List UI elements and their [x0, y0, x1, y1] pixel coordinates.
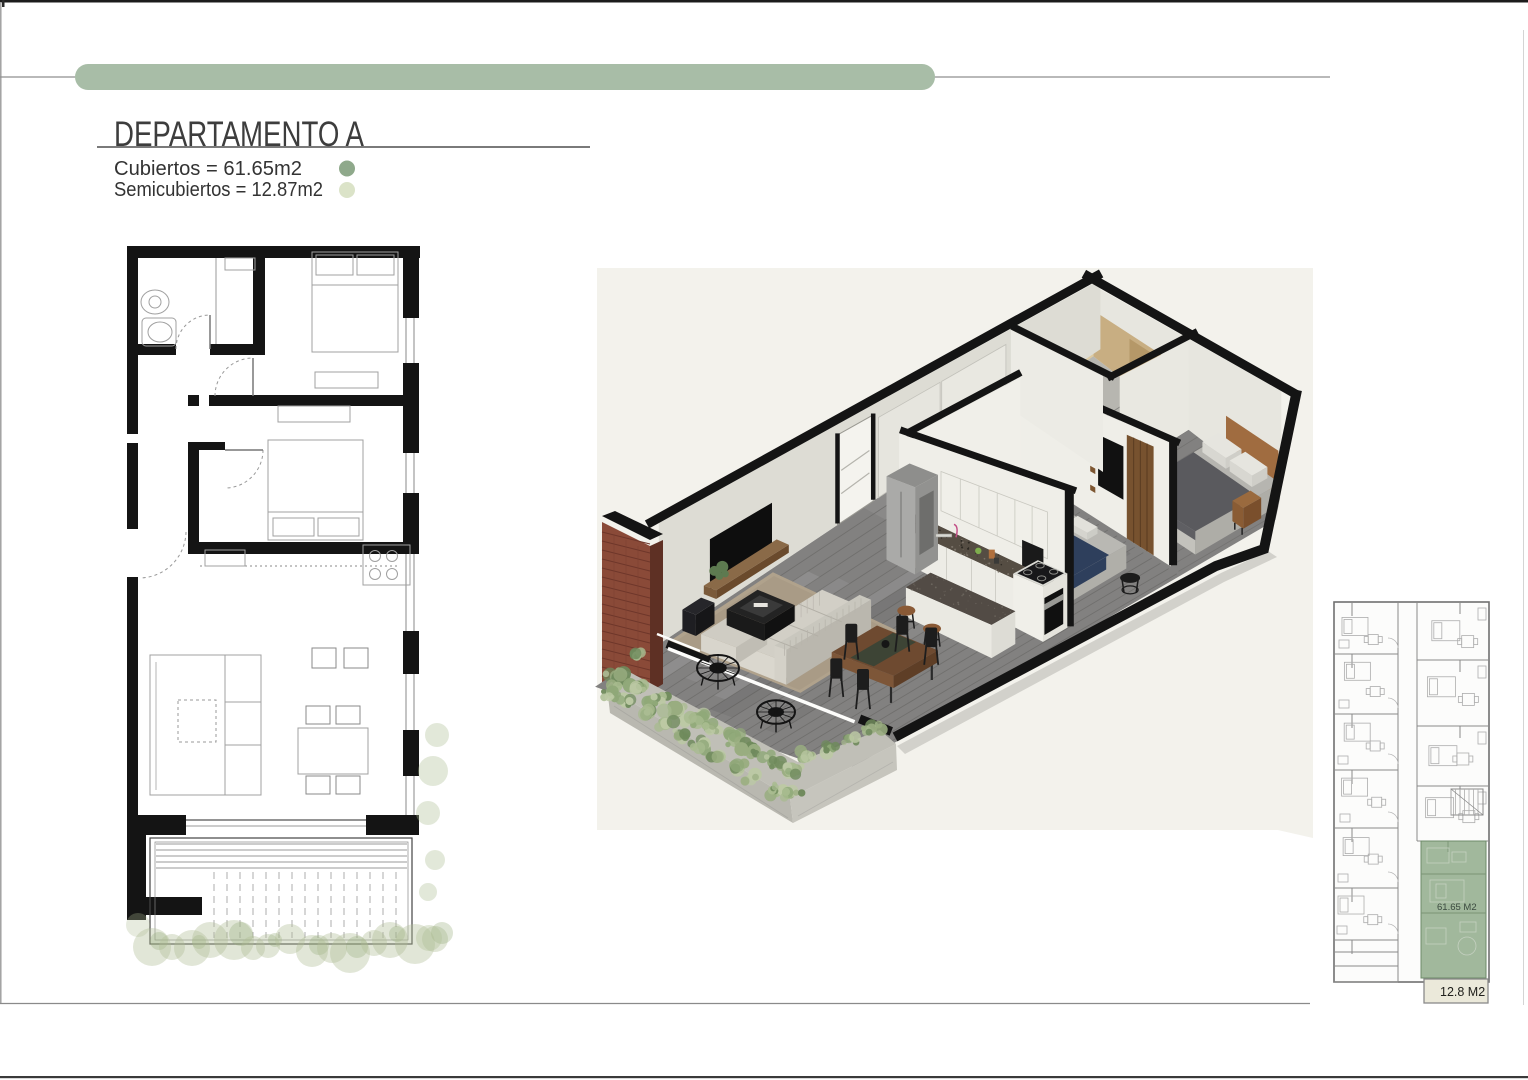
svg-text:DEPARTAMENTO A: DEPARTAMENTO A	[114, 115, 365, 154]
svg-text:61.65 M2: 61.65 M2	[1437, 902, 1477, 913]
svg-text:12.8 M2: 12.8 M2	[1440, 985, 1485, 999]
svg-text:Semicubiertos = 12.87m2: Semicubiertos = 12.87m2	[114, 179, 323, 201]
svg-text:Cubiertos = 61.65m2: Cubiertos = 61.65m2	[114, 158, 302, 180]
